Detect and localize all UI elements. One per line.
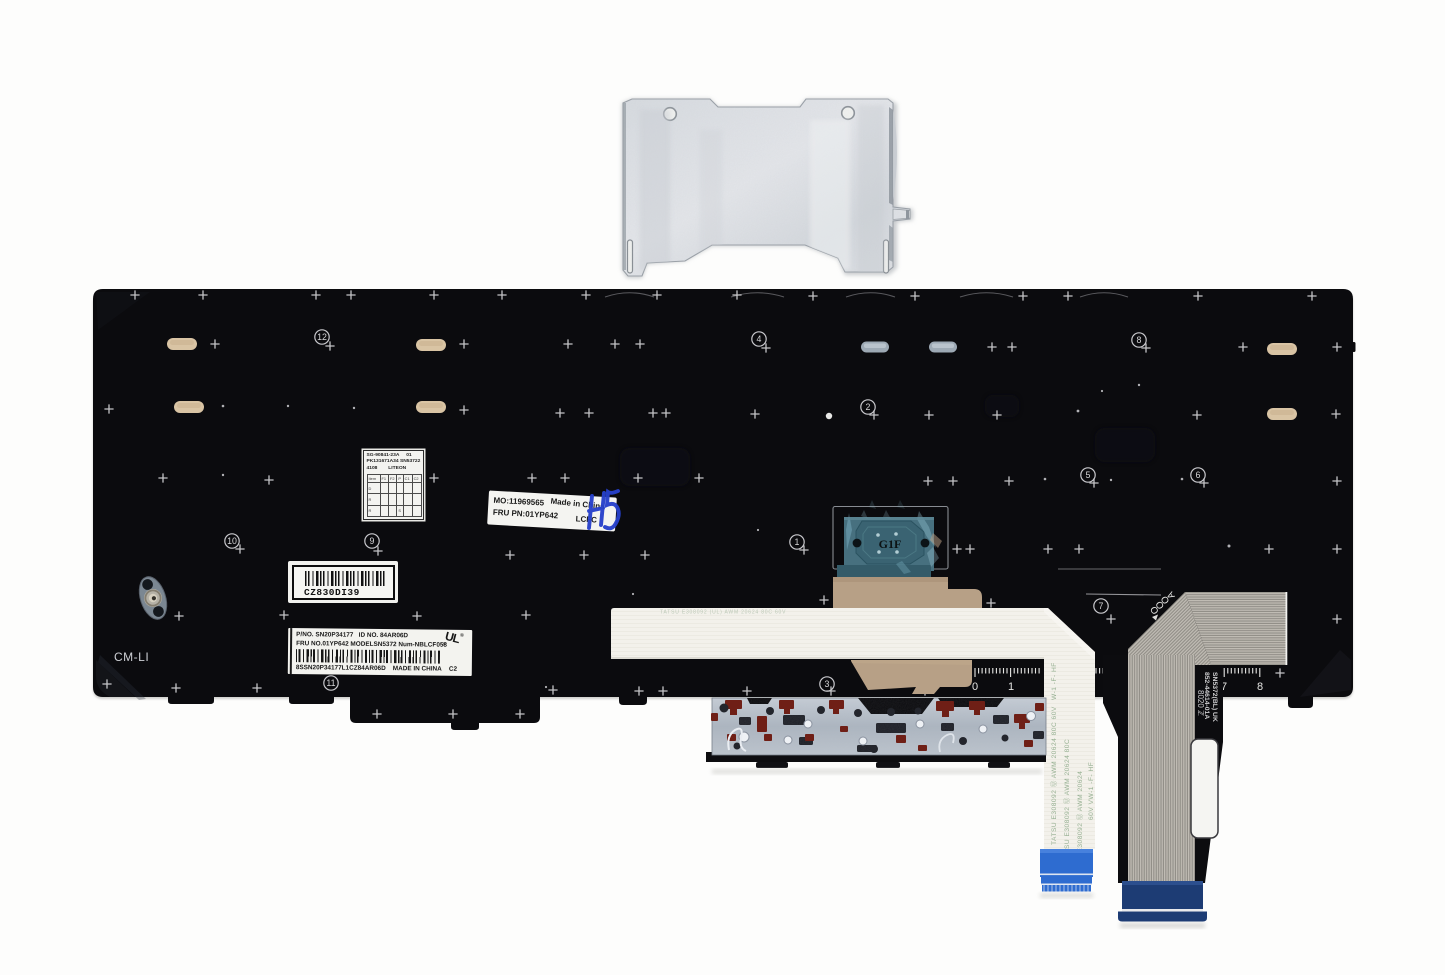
svg-text:12: 12 xyxy=(317,332,327,342)
svg-text:7: 7 xyxy=(1099,601,1104,611)
svg-text:TATSU E308092 Ⓤ AWM 20624 80C: TATSU E308092 Ⓤ AWM 20624 80C xyxy=(1063,739,1071,862)
svg-text:11: 11 xyxy=(326,678,335,688)
svg-text:9: 9 xyxy=(370,536,375,546)
svg-text:1: 1 xyxy=(795,537,800,547)
svg-text:TATSU E308092 (UL) AWM 206: TATSU E308092 (UL) AWM 20624 80C 60V xyxy=(660,610,786,616)
svg-text:TATSU E308092 Ⓤ AWM 20624 80C: TATSU E308092 Ⓤ AWM 20624 80C 60V xyxy=(1050,706,1058,845)
svg-text:8: 8 xyxy=(1137,335,1142,345)
svg-text:1: 1 xyxy=(1008,681,1014,693)
svg-text:8: 8 xyxy=(1257,681,1263,693)
svg-text:5: 5 xyxy=(1086,470,1091,480)
svg-text:W-1 -F- HF: W-1 -F- HF xyxy=(1051,662,1058,700)
svg-text:60V VW-1 -F- HF: 60V VW-1 -F- HF xyxy=(1088,762,1095,820)
svg-text:10: 10 xyxy=(227,536,237,546)
svg-text:SN5372(BL) UK: SN5372(BL) UK xyxy=(1211,672,1218,722)
svg-text:6: 6 xyxy=(1196,470,1201,480)
svg-text:2: 2 xyxy=(866,402,871,412)
svg-text:8020 ℤ: 8020 ℤ xyxy=(1196,690,1205,716)
svg-text:3: 3 xyxy=(825,679,830,689)
svg-text:0: 0 xyxy=(972,681,978,693)
svg-text:4: 4 xyxy=(757,334,762,344)
svg-text:G1F: G1F xyxy=(879,537,902,551)
